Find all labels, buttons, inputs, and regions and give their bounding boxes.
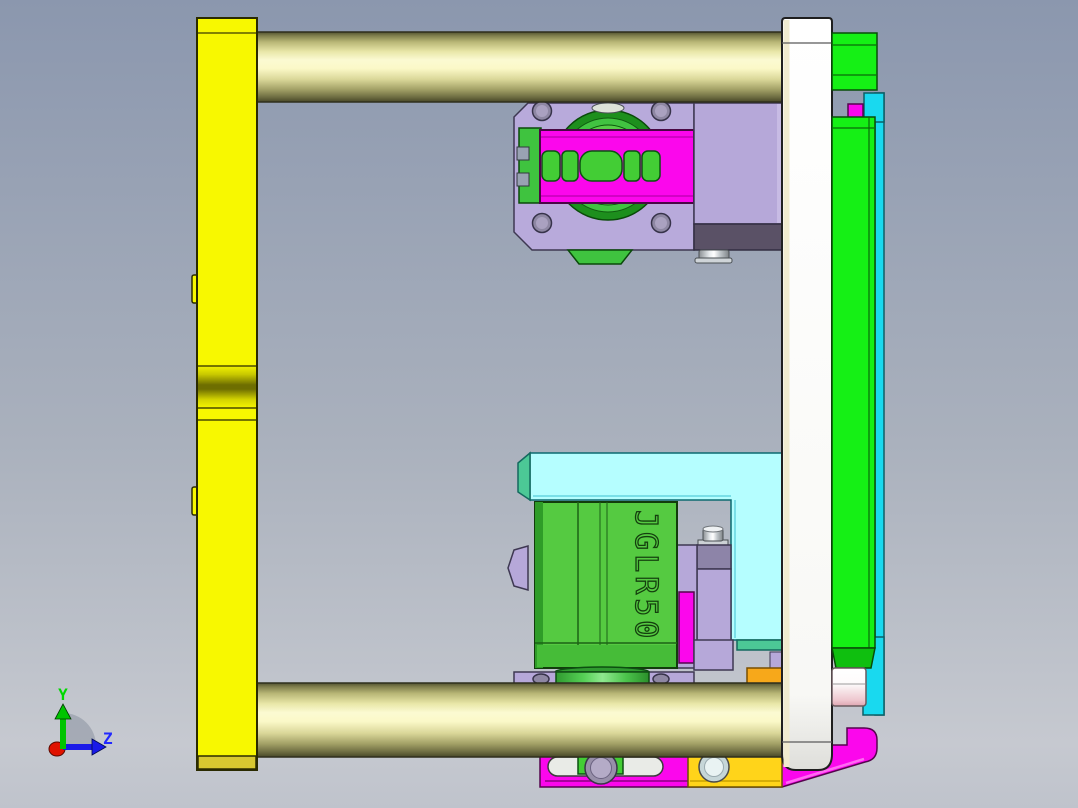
upright-mid-joint [198,366,256,408]
cad-scene: JGLR50 [0,0,1078,808]
right-green-panel-stack[interactable] [832,33,884,715]
spacer-screw-flange [695,258,732,263]
pink-roller [832,668,866,706]
guide-comb [519,128,541,203]
purple-riser-block [697,545,731,569]
bottom-guide-rod[interactable] [257,683,783,757]
slot-screw-head [591,758,612,779]
roller-3 [580,151,622,181]
top-bearing-assembly[interactable] [514,102,783,265]
small-purple-spacer [770,652,782,668]
top-guide-rod[interactable] [257,32,783,102]
gold-screw-head [705,758,724,777]
cyan-backing-strip [875,93,884,715]
comb-notch-top [517,147,529,160]
carriage-screw-top [703,526,723,532]
dark-spacer-band [694,224,783,250]
green-top-block [832,33,877,90]
roller-5 [642,151,660,181]
green-key-tab [568,250,632,264]
motor-mount-block [694,103,783,224]
roller-2 [562,151,578,181]
y-axis-label: Y [58,685,68,704]
roller-4 [624,151,640,181]
carriage-part-label: JGLR50 [628,510,663,642]
bearing-shaft-sliver [592,103,624,113]
magenta-slide-strip [679,592,694,663]
bracket-teal-foot [737,640,782,650]
panel-end-cap [832,648,875,668]
carriage-bottom-band [537,645,676,667]
z-axis-label: Z [103,729,113,748]
lavender-foot-block [694,640,733,670]
cad-viewport[interactable]: JGLR50 [0,0,1078,808]
end-plate-cream-strip [784,20,790,767]
white-end-plate[interactable] [782,18,832,770]
roller-1 [542,151,560,181]
yellow-upright-plate[interactable] [192,18,257,770]
comb-notch-bottom [517,173,529,186]
upright-bottom-cap [198,756,256,769]
